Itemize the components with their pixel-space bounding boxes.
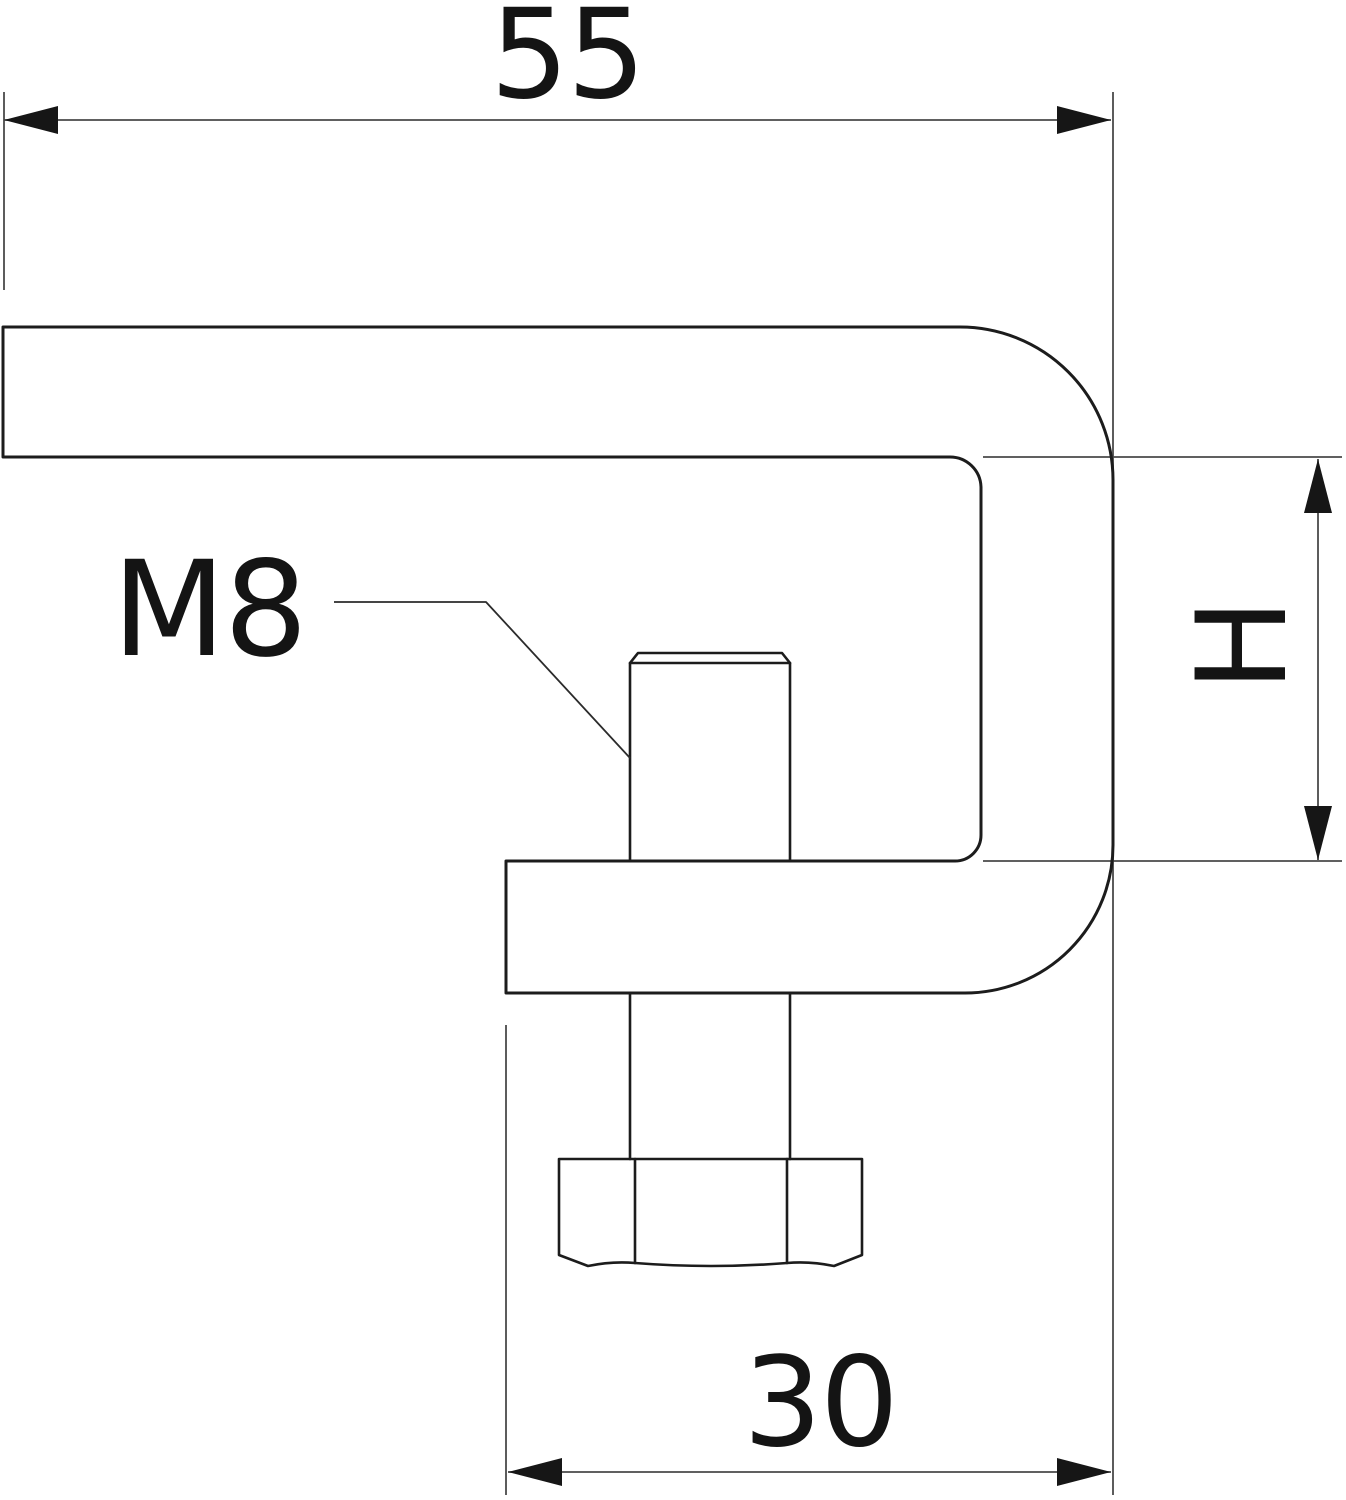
screw-stud-outline bbox=[630, 653, 790, 861]
width55-arrow-right bbox=[1057, 106, 1111, 134]
width55-label: 55 bbox=[490, 0, 644, 127]
hex-head-outline bbox=[559, 1159, 862, 1266]
width30-label: 30 bbox=[743, 1331, 897, 1475]
width30-arrow-left bbox=[508, 1458, 562, 1486]
thread-size-label: M8 bbox=[112, 533, 306, 687]
heightH-arrow-bottom bbox=[1304, 806, 1332, 860]
thread-leader-line bbox=[334, 602, 630, 758]
technical-drawing-page: 55 M8 H 30 bbox=[0, 0, 1346, 1500]
heightH-arrow-top bbox=[1304, 459, 1332, 513]
heightH-label: H bbox=[1171, 600, 1315, 691]
width30-arrow-right bbox=[1057, 1458, 1111, 1486]
width55-arrow-left bbox=[4, 106, 58, 134]
technical-drawing-canvas: 55 M8 H 30 bbox=[0, 0, 1346, 1500]
